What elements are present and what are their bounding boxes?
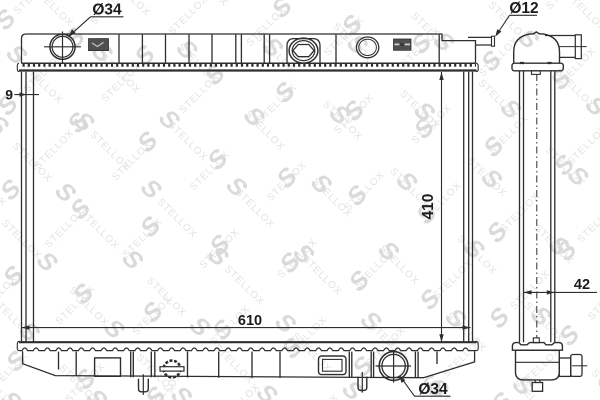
svg-text:STELLOX: STELLOX	[77, 208, 121, 252]
svg-text:Ø34: Ø34	[418, 381, 448, 398]
svg-text:STELLOX: STELLOX	[165, 120, 209, 164]
svg-text:S: S	[115, 246, 150, 274]
svg-text:STELLOX: STELLOX	[297, 392, 341, 400]
svg-text:STELLOX: STELLOX	[88, 129, 132, 173]
svg-text:410: 410	[420, 194, 437, 220]
svg-text:STELLOX: STELLOX	[167, 0, 211, 37]
svg-text:STELLOX: STELLOX	[222, 264, 266, 308]
svg-text:STELLOX: STELLOX	[467, 0, 511, 2]
svg-text:Ø12: Ø12	[509, 0, 538, 17]
svg-text:STELLOX: STELLOX	[31, 0, 75, 29]
svg-text:9: 9	[5, 87, 13, 103]
svg-text:Ø34: Ø34	[92, 2, 122, 19]
svg-text:610: 610	[238, 313, 262, 329]
svg-text:42: 42	[574, 277, 590, 293]
svg-text:STELLOX: STELLOX	[300, 254, 344, 298]
svg-text:STELLOX: STELLOX	[564, 0, 600, 34]
svg-text:STELLOX: STELLOX	[576, 201, 600, 245]
